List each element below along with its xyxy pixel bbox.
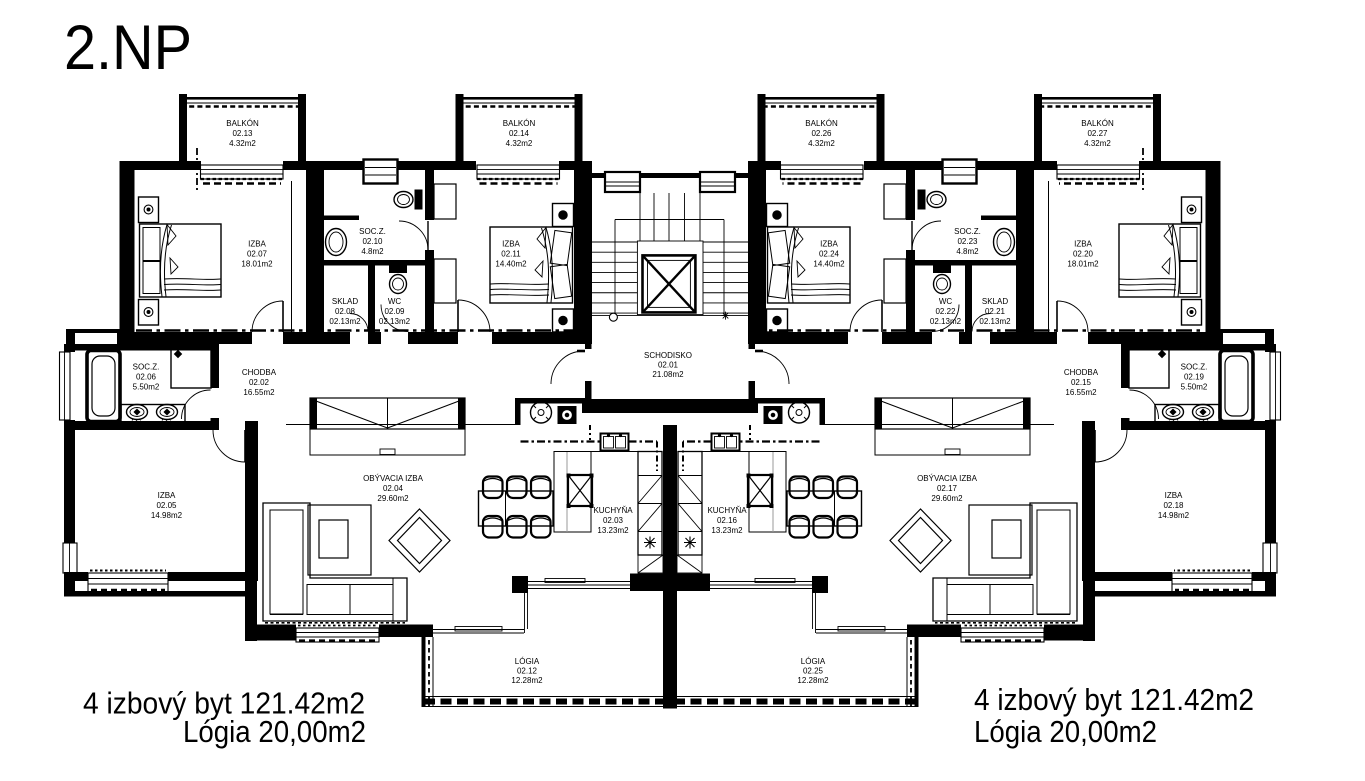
svg-text:Lógia 20,00m2: Lógia 20,00m2 (974, 714, 1157, 749)
svg-text:14.98m2: 14.98m2 (151, 511, 183, 520)
svg-text:02.05: 02.05 (156, 501, 177, 510)
svg-text:02.13m2: 02.13m2 (379, 317, 411, 326)
svg-text:02.08: 02.08 (335, 307, 356, 316)
svg-text:4.8m2: 4.8m2 (956, 247, 979, 256)
svg-text:02.22: 02.22 (935, 307, 956, 316)
svg-text:02.27: 02.27 (1087, 129, 1108, 138)
svg-text:12.28m2: 12.28m2 (797, 676, 829, 685)
svg-text:BALKÓN: BALKÓN (503, 119, 536, 128)
svg-text:14.40m2: 14.40m2 (813, 260, 845, 269)
svg-text:4 izbový byt 121.42m2: 4 izbový byt 121.42m2 (974, 682, 1254, 717)
svg-text:02.13: 02.13 (232, 129, 253, 138)
svg-text:4.32m2: 4.32m2 (1084, 139, 1111, 148)
svg-text:SKLAD: SKLAD (982, 297, 1008, 306)
svg-text:02.19: 02.19 (1184, 373, 1205, 382)
svg-text:5.50m2: 5.50m2 (1181, 383, 1208, 392)
svg-text:02.14: 02.14 (509, 129, 530, 138)
svg-text:SOC.Z.: SOC.Z. (133, 363, 160, 372)
svg-text:02.11: 02.11 (501, 250, 521, 259)
svg-text:02.03: 02.03 (603, 516, 624, 525)
svg-text:02.20: 02.20 (1073, 250, 1094, 259)
svg-text:IZBA: IZBA (1074, 240, 1092, 249)
svg-text:02.16: 02.16 (717, 516, 738, 525)
svg-text:02.18: 02.18 (1163, 501, 1184, 510)
svg-text:SCHODISKO: SCHODISKO (644, 351, 692, 360)
svg-text:13.23m2: 13.23m2 (711, 526, 743, 535)
svg-text:BALKÓN: BALKÓN (1081, 119, 1114, 128)
svg-text:BALKÓN: BALKÓN (226, 119, 259, 128)
svg-text:02.09: 02.09 (384, 307, 405, 316)
svg-text:02.10: 02.10 (362, 237, 383, 246)
svg-text:OBÝVACIA IZBA: OBÝVACIA IZBA (363, 474, 424, 483)
svg-text:WC: WC (939, 297, 953, 306)
svg-text:02.04: 02.04 (383, 484, 404, 493)
svg-text:IZBA: IZBA (1165, 491, 1183, 500)
svg-text:LÓGIA: LÓGIA (801, 657, 826, 666)
svg-text:13.23m2: 13.23m2 (597, 526, 629, 535)
svg-text:IZBA: IZBA (248, 240, 266, 249)
svg-text:14.98m2: 14.98m2 (1158, 511, 1190, 520)
svg-text:02.13m2: 02.13m2 (329, 317, 361, 326)
svg-text:16.55m2: 16.55m2 (243, 388, 275, 397)
svg-text:KUCHYŇA: KUCHYŇA (707, 506, 747, 515)
svg-text:02.15: 02.15 (1071, 378, 1092, 387)
svg-text:5.50m2: 5.50m2 (133, 383, 160, 392)
svg-text:02.07: 02.07 (247, 250, 268, 259)
svg-text:14.40m2: 14.40m2 (495, 260, 527, 269)
svg-text:18.01m2: 18.01m2 (241, 260, 273, 269)
svg-text:SOC.Z.: SOC.Z. (1181, 363, 1208, 372)
svg-text:02.26: 02.26 (811, 129, 832, 138)
svg-text:KUCHYŇA: KUCHYŇA (593, 506, 633, 515)
svg-text:4.32m2: 4.32m2 (506, 139, 533, 148)
svg-text:21.08m2: 21.08m2 (652, 370, 684, 379)
svg-text:02.25: 02.25 (803, 667, 824, 676)
svg-text:4.8m2: 4.8m2 (361, 247, 384, 256)
svg-text:OBÝVACIA IZBA: OBÝVACIA IZBA (917, 474, 978, 483)
svg-text:CHODBA: CHODBA (1064, 368, 1099, 377)
svg-text:02.17: 02.17 (937, 484, 958, 493)
svg-text:SKLAD: SKLAD (332, 297, 358, 306)
svg-text:4.32m2: 4.32m2 (229, 139, 256, 148)
svg-text:02.21: 02.21 (985, 307, 1006, 316)
svg-text:12.28m2: 12.28m2 (511, 676, 543, 685)
svg-text:IZBA: IZBA (820, 240, 838, 249)
svg-text:02.01: 02.01 (658, 361, 679, 370)
svg-text:Lógia 20,00m2: Lógia 20,00m2 (183, 714, 366, 749)
svg-text:IZBA: IZBA (158, 491, 176, 500)
svg-text:02.24: 02.24 (819, 250, 840, 259)
svg-text:29.60m2: 29.60m2 (377, 494, 409, 503)
svg-text:02.13m2: 02.13m2 (979, 317, 1011, 326)
svg-text:16.55m2: 16.55m2 (1065, 388, 1097, 397)
svg-text:4.32m2: 4.32m2 (808, 139, 835, 148)
svg-text:29.60m2: 29.60m2 (931, 494, 963, 503)
svg-text:02.06: 02.06 (136, 373, 157, 382)
svg-text:BALKÓN: BALKÓN (805, 119, 838, 128)
svg-text:WC: WC (388, 297, 402, 306)
svg-text:2.NP: 2.NP (64, 13, 192, 83)
svg-text:02.12: 02.12 (517, 667, 538, 676)
svg-text:18.01m2: 18.01m2 (1067, 260, 1099, 269)
svg-text:IZBA: IZBA (502, 240, 520, 249)
svg-text:02.23: 02.23 (957, 237, 978, 246)
svg-text:SOC.Z.: SOC.Z. (954, 227, 981, 236)
svg-text:02.13m2: 02.13m2 (930, 317, 962, 326)
svg-text:02.02: 02.02 (249, 378, 270, 387)
svg-text:LÓGIA: LÓGIA (515, 657, 540, 666)
svg-text:CHODBA: CHODBA (242, 368, 277, 377)
svg-text:SOC.Z.: SOC.Z. (359, 227, 386, 236)
